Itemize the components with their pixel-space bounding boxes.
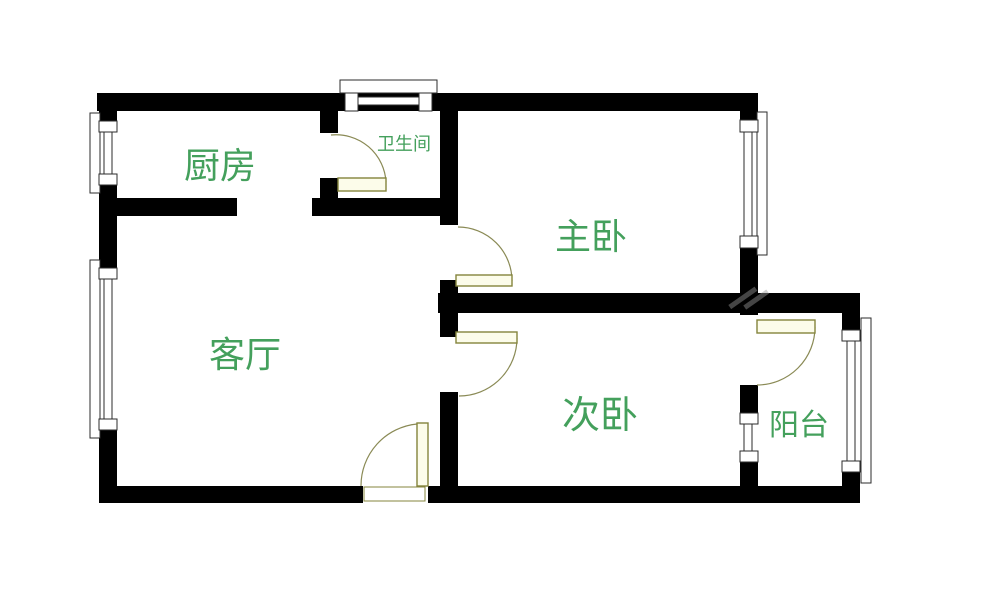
room-label-balcony: 阳台: [769, 409, 829, 442]
room-label-master-bedroom: 主卧: [555, 217, 627, 257]
wall-bottom-right: [428, 486, 860, 503]
room-label-kitchen: 厨房: [184, 146, 256, 186]
wall-bathroom-bottom: [312, 198, 458, 216]
wall-right-top-stub: [740, 111, 758, 120]
room-label-living-room: 客厅: [209, 335, 281, 375]
living-room-left-window: [90, 260, 117, 438]
second-bedroom-door: [456, 332, 517, 396]
balcony-right-window: [842, 318, 871, 483]
wall-kitchen-bottom: [117, 198, 237, 216]
wall-interior-vertical-mid: [440, 280, 458, 337]
wall-interior-vertical-bottom: [440, 392, 458, 486]
wall-balcony-right-lower: [842, 472, 860, 503]
room-label-bathroom: 卫生间: [377, 134, 431, 154]
wall-balcony-right-upper: [842, 313, 860, 330]
floor-plan-canvas: 厨房 卫生间 主卧 客厅 次卧 阳台: [0, 0, 1000, 590]
kitchen-left-window: [90, 113, 117, 193]
master-bedroom-door: [456, 227, 512, 286]
wall-bedroom-balcony-upper: [740, 385, 758, 413]
balcony-door: [757, 320, 815, 385]
room-label-second-bedroom: 次卧: [562, 395, 638, 437]
master-bedroom-right-window: [740, 112, 767, 255]
wall-bedroom-divider: [438, 293, 860, 313]
wall-bottom-left: [99, 486, 363, 503]
wall-bedroom-balcony-lower: [740, 462, 758, 486]
wall-left-middle: [99, 185, 117, 268]
floor-plan-svg: 厨房 卫生间 主卧 客厅 次卧 阳台: [0, 0, 1000, 590]
entrance-door: [361, 423, 428, 501]
wall-bathroom-left-upper: [320, 111, 338, 133]
wall-left-upper: [99, 93, 117, 121]
bedroom-balcony-window: [740, 413, 758, 462]
